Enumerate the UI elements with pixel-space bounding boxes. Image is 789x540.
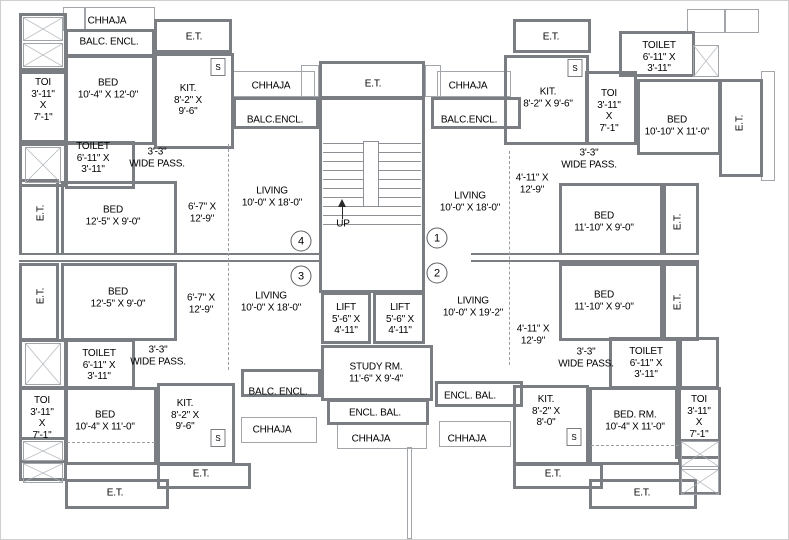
overhang-line [725, 9, 759, 33]
unit-number-1: 1 [427, 228, 448, 249]
party-wall [19, 253, 319, 262]
label-et1-bottom-left: E.T. [193, 468, 209, 480]
label-et-mid-left-lower: E.T. [35, 288, 47, 304]
label-toi-top-right: TOI 3'-11" X 7'-1" [597, 88, 621, 134]
label-et-mid-right-lower: E.T. [672, 294, 684, 310]
label-kit-bottom-left: KIT. 8'-2" X 9'-6" [171, 398, 199, 433]
switch-marker-bottom-left: S [211, 429, 226, 447]
label-lift-1: LIFT 5'-6" X 4'-11" [332, 302, 360, 337]
label-kit-bottom-right: KIT. 8'-2" X 8'-0" [532, 394, 560, 429]
label-chhaja-center: CHHAJA [352, 433, 391, 445]
label-up: UP [336, 218, 350, 230]
label-encl-bal-center: ENCL. BAL. [349, 407, 401, 419]
label-et-side-top-right: E.T. [734, 115, 746, 131]
label-balc-encl-top-left: BALC. ENCL. [80, 36, 139, 48]
duct-shaft [23, 441, 63, 461]
label-living-flat3: LIVING 10'-0" X 18'-0" [241, 291, 301, 314]
label-living-flat4: LIVING 10'-0" X 18'-0" [242, 186, 302, 209]
label-toilet-top-right: TOILET 6'-11" X 3'-11" [642, 40, 676, 75]
label-pass-mid-left-upper: 6'-7" X 12'-9" [188, 202, 216, 225]
duct-shaft [25, 343, 61, 385]
duct-shaft [23, 463, 63, 483]
label-toi-top-left: TOI 3'-11" X 7'-1" [31, 77, 55, 123]
label-living-flat1: LIVING 10'-0" X 18'-0" [440, 191, 500, 214]
overhang-line [425, 65, 441, 97]
label-living-flat2: LIVING 10'-0" X 19'-2" [443, 296, 503, 319]
label-bed-bottom-left: BED 10'-4" X 11'-0" [75, 410, 134, 433]
label-et2-bottom-left: E.T. [107, 487, 123, 499]
party-wall [471, 253, 699, 262]
label-pass-mid-right-lower: 4'-11" X 12'-9" [517, 324, 550, 347]
label-lift-2: LIFT 5'-6" X 4'-11" [386, 302, 414, 337]
switch-marker-top-left: S [211, 58, 226, 76]
duct-shaft [25, 147, 61, 183]
duct-shaft [23, 43, 63, 67]
label-pass-top-right: 3'-3" WIDE PASS. [561, 148, 617, 171]
passage-dashed-line [228, 144, 229, 370]
label-bed-mid-right-lower: BED 11'-10" X 9'-0" [574, 290, 633, 313]
label-toilet-bottom-left: TOILET 6'-11" X 3'-11" [82, 348, 116, 383]
unit-number-4: 4 [291, 231, 312, 252]
label-pass-top-left: 3'-3" WIDE PASS. [129, 147, 185, 170]
label-bed-top-right: BED 10'-10" X 11'-0" [645, 115, 710, 138]
overhang-line [407, 447, 412, 539]
passage-dashed-line [67, 442, 155, 443]
label-bedrm-bottom-right: BED. RM. 10'-4" X 11'-0" [605, 410, 664, 433]
label-et-top-right: E.T. [543, 31, 559, 43]
floor-plan: CHHAJA BALC. ENCL. E.T. TOI 3'-11" X 7'-… [0, 0, 789, 540]
label-et2-bottom-right: E.T. [634, 487, 650, 499]
label-pass-mid-right-upper: 4'-11" X 12'-9" [516, 173, 549, 196]
label-pass-bottom-right: 3'-3" WIDE PASS. [558, 347, 614, 370]
passage-dashed-line [591, 445, 679, 446]
label-bed-top-left: BED 10'-4" X 12'-0" [78, 78, 138, 101]
label-toi-bottom-left: TOI 3'-11" X 7'-1" [30, 395, 54, 441]
unit-number-3: 3 [291, 266, 312, 287]
switch-marker-bottom-right: S [567, 428, 582, 446]
label-bed-mid-left-upper: BED 12'-5" X 9'-0" [86, 205, 141, 228]
up-arrow-stem [342, 206, 343, 219]
label-balc-encl-bot-left: BALC. ENCL. [249, 386, 308, 398]
duct-shaft [693, 45, 719, 77]
label-chhaja-top-left: CHHAJA [88, 15, 127, 27]
label-chhaja-bot-right: CHHAJA [448, 433, 487, 445]
label-et1-bottom-right: E.T. [545, 468, 561, 480]
wall [679, 337, 719, 389]
label-encl-bal-bot-right: ENCL. BAL. [444, 390, 496, 402]
label-toi-bottom-right: TOI 3'-11" X 7'-1" [687, 394, 711, 440]
label-balc-encl-top-right: BALC.ENCL. [441, 114, 497, 126]
label-study-room: STUDY RM. 11'-6" X 9'-4" [349, 362, 403, 385]
label-pass-mid-left-lower: 6'-7" X 12'-9" [187, 293, 215, 316]
label-kit-top-left: KIT. 8'-2" X 9'-6" [174, 83, 202, 118]
stair-tread [323, 215, 421, 216]
label-bed-mid-right-upper: BED 11'-10" X 9'-0" [574, 211, 633, 234]
label-toilet-bottom-right: TOILET 6'-11" X 3'-11" [629, 346, 663, 381]
label-chhaja-bot-left: CHHAJA [253, 424, 292, 436]
overhang-line [687, 9, 725, 33]
label-bed-mid-left-lower: BED 12'-5" X 9'-0" [91, 287, 146, 310]
label-chhaja2-top-left: CHHAJA [252, 80, 291, 92]
up-arrow-icon [338, 199, 346, 207]
stair-divider [363, 141, 379, 207]
label-chhaja-top-right: CHHAJA [449, 80, 488, 92]
overhang-line [761, 71, 775, 181]
label-et-mid-left-upper: E.T. [35, 205, 47, 221]
duct-shaft [23, 17, 63, 41]
label-kit-top-right: KIT. 8'-2" X 9'-6" [523, 87, 572, 110]
passage-dashed-line [509, 151, 510, 365]
duct-shaft [681, 469, 719, 495]
label-et-top-left: E.T. [186, 31, 202, 43]
label-et-mid-right-upper: E.T. [672, 214, 684, 230]
duct-shaft [681, 441, 719, 467]
label-pass-bottom-left: 3'-3" WIDE PASS. [130, 345, 186, 368]
label-toilet-top-left: TOILET 6'-11" X 3'-11" [76, 141, 110, 176]
label-balc-encl2-top-left: BALC.ENCL. [247, 114, 303, 126]
overhang-line [301, 65, 319, 97]
unit-number-2: 2 [427, 263, 448, 284]
switch-marker-top-right: S [568, 59, 583, 77]
label-et-core-top: E.T. [365, 78, 381, 90]
